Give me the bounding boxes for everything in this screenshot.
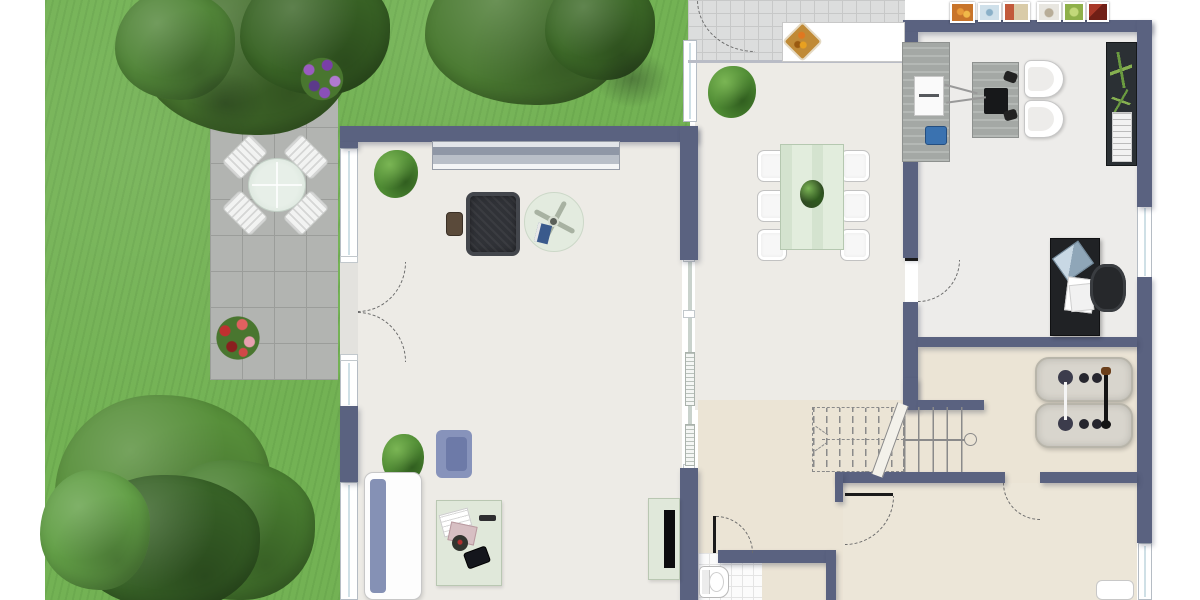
stairs-center-line: [904, 439, 968, 441]
tree-shadow: [595, 50, 670, 108]
barbell: [1104, 372, 1108, 424]
shelf-plant: [1110, 52, 1132, 88]
terrace-threshold: [340, 263, 358, 355]
toilet[interactable]: [699, 566, 729, 598]
entry-door-swing: [697, 0, 755, 52]
fitness-door-swing: [1003, 483, 1040, 520]
stairs-newel: [964, 433, 977, 446]
door-post: [340, 256, 358, 263]
furniture-partial[interactable]: [1096, 580, 1134, 600]
wall: [826, 550, 836, 600]
bench-rail: [1064, 382, 1067, 420]
door-post: [340, 354, 358, 361]
hall-door-panel: [845, 493, 893, 496]
partition-post: [683, 310, 695, 318]
window: [683, 40, 697, 122]
bench-dot: [1079, 419, 1089, 429]
remote: [479, 515, 496, 521]
wall: [680, 468, 698, 600]
wall-picture: [1063, 2, 1085, 22]
office-door-panel: [905, 258, 918, 261]
wall-picture: [950, 2, 975, 23]
terrace-door-swing: [358, 312, 406, 362]
terrace-door-swing: [358, 262, 406, 312]
wc-door-panel: [713, 516, 716, 553]
window: [1137, 205, 1152, 279]
wc-door-swing: [716, 516, 753, 553]
wall: [1137, 277, 1152, 543]
armchair-dark[interactable]: [466, 192, 520, 256]
wall-picture: [1087, 2, 1109, 22]
window: [340, 148, 358, 258]
tree-shadow: [185, 72, 265, 134]
barbell-end: [1101, 367, 1111, 375]
desk-chair[interactable]: [1024, 60, 1064, 98]
shelf-drawers: [1112, 112, 1132, 162]
wall-picture: [978, 3, 1001, 22]
flower-bed-purple: [296, 56, 348, 102]
wall: [835, 472, 1005, 483]
bench-dot: [1092, 373, 1102, 383]
dining-chair[interactable]: [840, 190, 870, 222]
vase: [452, 535, 468, 551]
side-tray[interactable]: [446, 212, 463, 236]
wall: [680, 126, 698, 260]
dining-chair[interactable]: [840, 229, 870, 261]
wall: [340, 142, 358, 148]
desk-accessory: [925, 126, 947, 145]
window: [340, 360, 358, 408]
computer-monitor: [984, 88, 1008, 114]
desk-chair[interactable]: [1024, 100, 1064, 138]
wall: [1040, 472, 1137, 483]
wall: [340, 126, 698, 142]
tv: [664, 510, 675, 568]
bench-dot: [1079, 373, 1089, 383]
hall-door-swing: [845, 496, 894, 545]
sofa[interactable]: [364, 472, 422, 600]
office-chair[interactable]: [1090, 264, 1126, 312]
dining-chair[interactable]: [840, 150, 870, 182]
wall: [918, 337, 1137, 347]
sideboard[interactable]: [432, 141, 620, 170]
wall-picture: [1037, 2, 1061, 22]
wall: [1137, 20, 1152, 207]
floor-plan-canvas: [0, 0, 1200, 600]
wall-picture: [1003, 2, 1030, 22]
wall: [340, 406, 358, 482]
window: [1138, 543, 1152, 600]
office-door-swing: [918, 260, 960, 302]
printer: [914, 76, 944, 116]
barbell-end: [1101, 420, 1111, 429]
radiator: [685, 352, 695, 406]
wall: [835, 472, 843, 502]
armchair-blue[interactable]: [436, 430, 472, 478]
tree-canopy: [40, 470, 150, 590]
window: [340, 482, 358, 600]
radiator: [685, 424, 695, 466]
